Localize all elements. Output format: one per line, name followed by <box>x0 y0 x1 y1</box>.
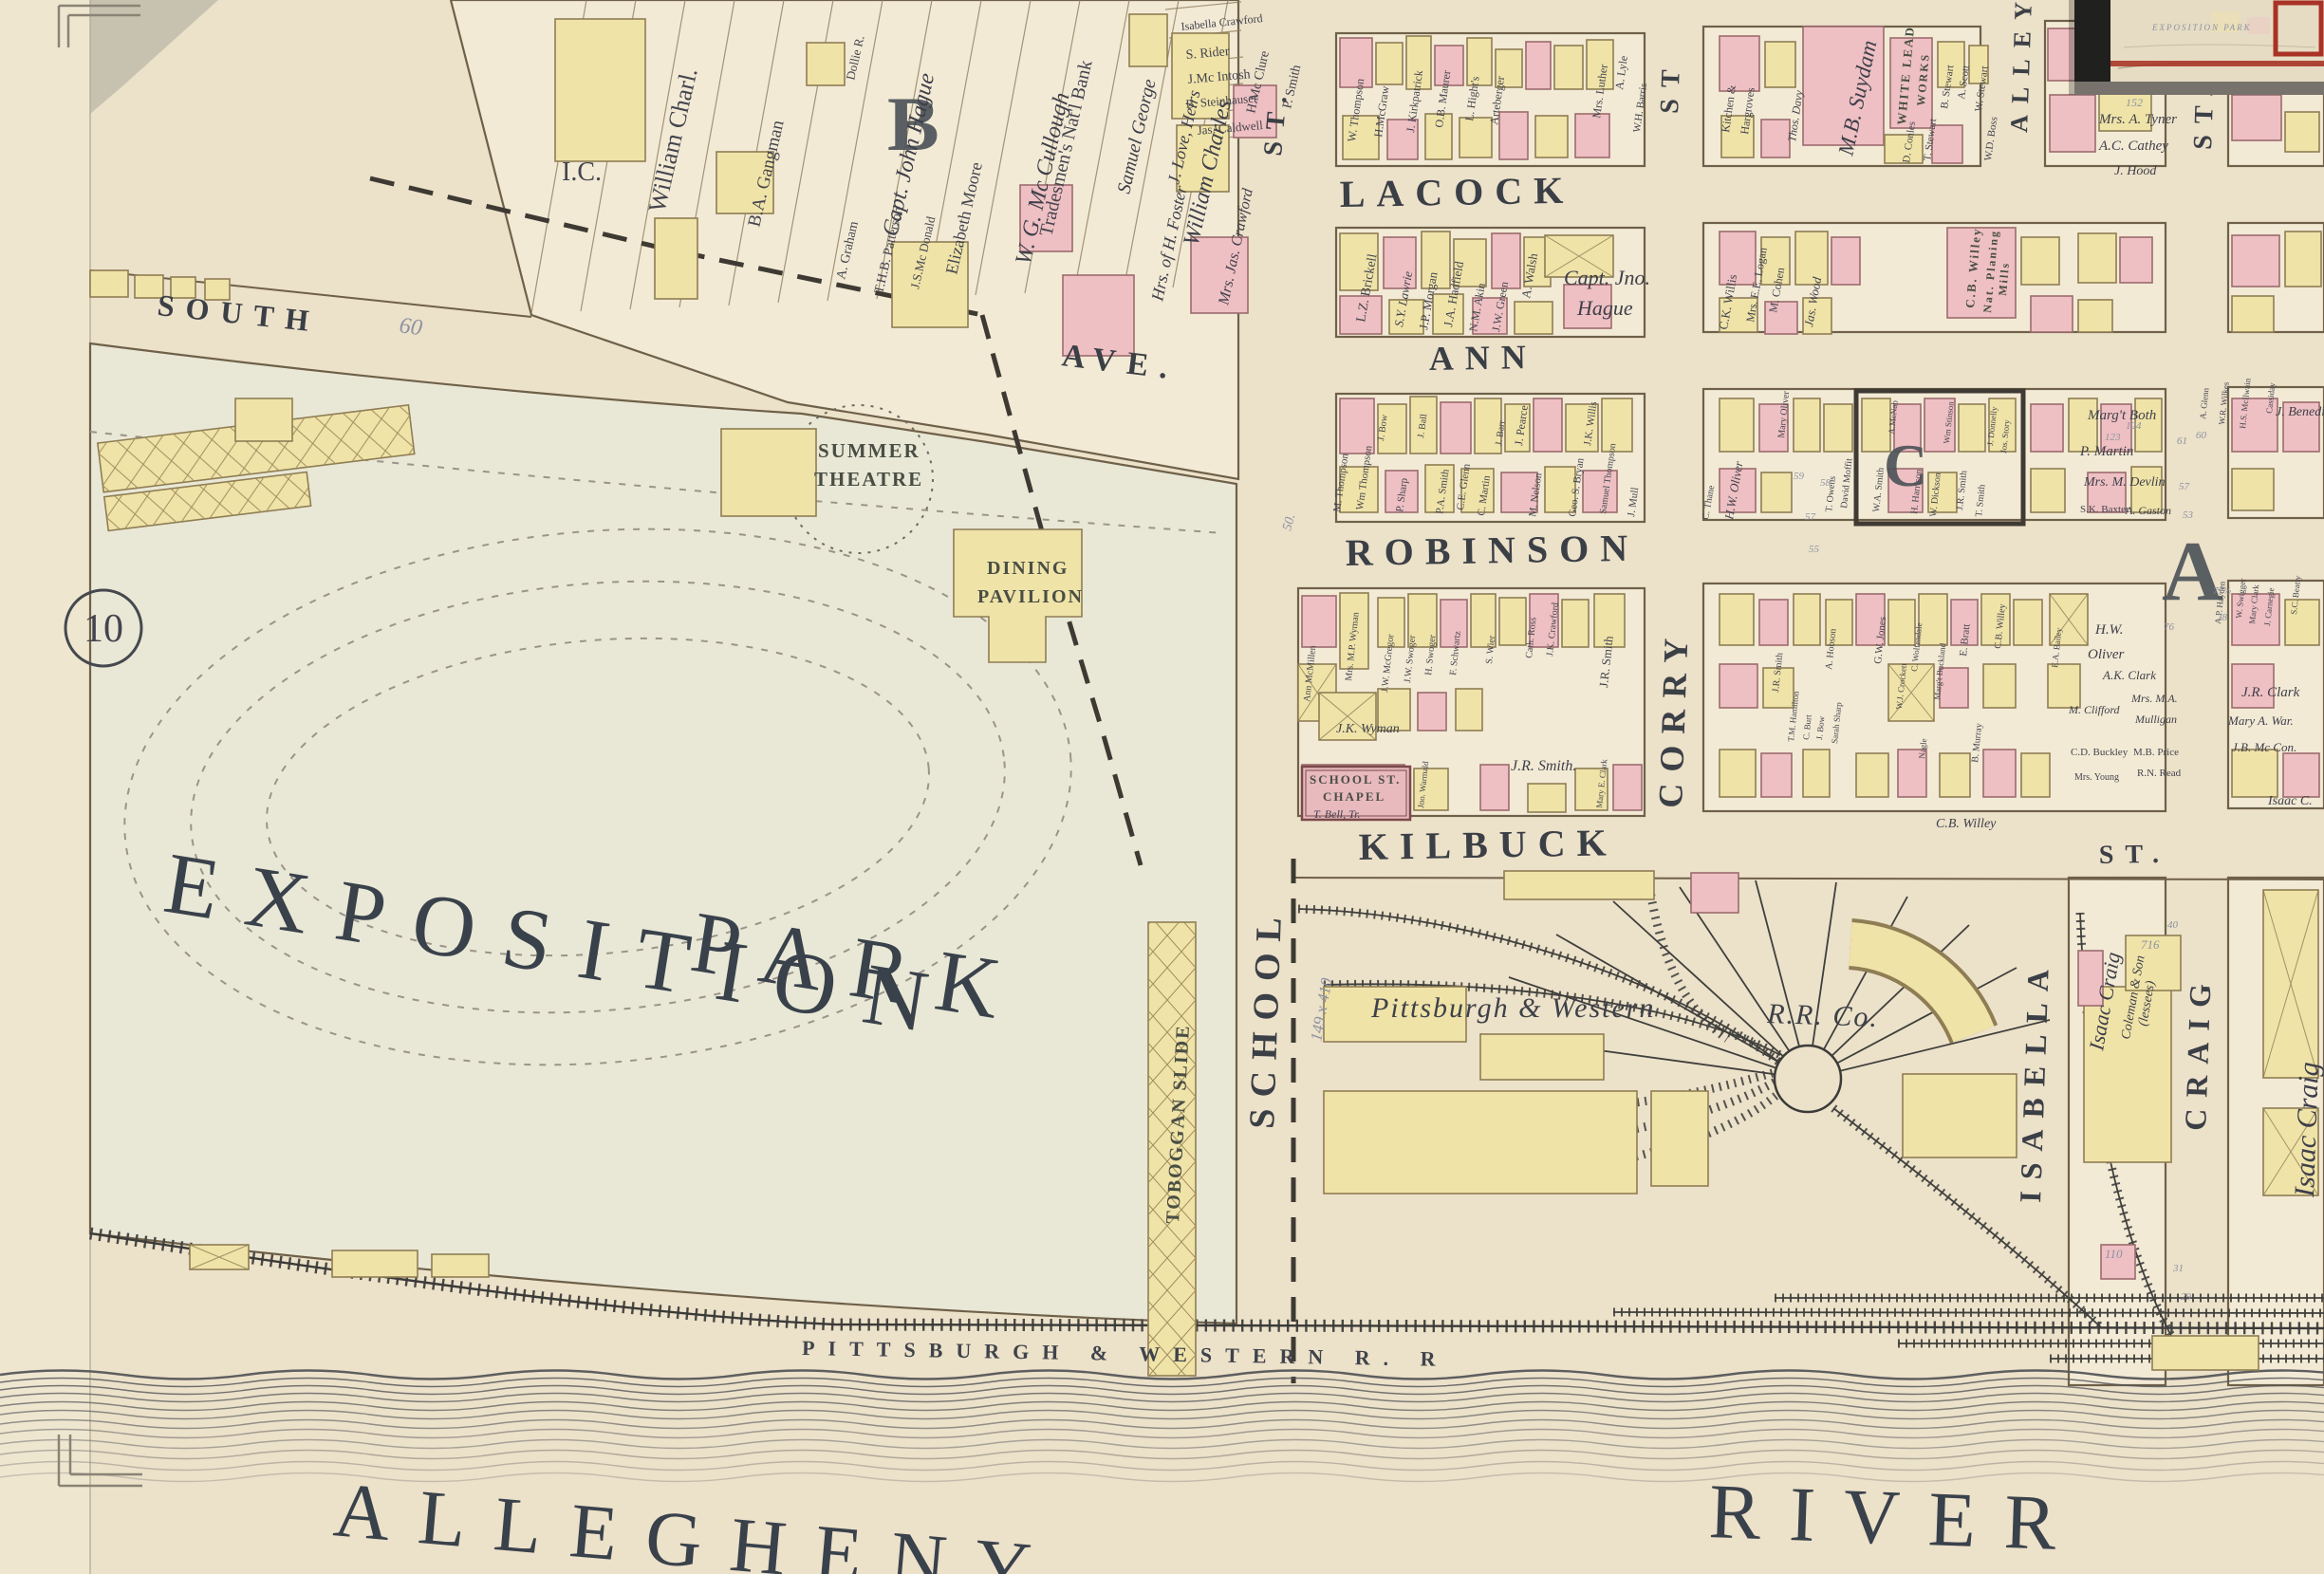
building <box>1761 472 1792 512</box>
map-label: CHAPEL <box>1323 789 1385 804</box>
building <box>1803 750 1830 797</box>
map-label: A.K. Clark <box>2102 668 2156 682</box>
lot-number: 60 <box>398 313 423 341</box>
building <box>1499 112 1528 159</box>
building <box>721 429 816 516</box>
lot-number: 55 <box>1809 544 1820 555</box>
map-label: PAVILION <box>977 586 1084 607</box>
building <box>807 43 845 85</box>
building <box>2078 300 2112 332</box>
lot-number: 123 <box>2105 432 2121 443</box>
atlas-map: EXPOSITION PARK ALLEGHENY RIVER 10 SOUTH… <box>0 0 2324 1574</box>
building <box>1759 600 1788 645</box>
lot-number: 29 <box>2181 1291 2192 1303</box>
building <box>1418 693 1446 731</box>
map-label: A.C. Cathey <box>2098 139 2168 154</box>
building <box>1903 1074 2017 1157</box>
map-label: A. Gaston <box>2125 504 2171 517</box>
map-label: J.R. Smith. <box>1511 758 1576 774</box>
street-label: LACOCK <box>1339 169 1574 215</box>
plate-number: 10 <box>84 607 123 651</box>
building <box>332 1250 418 1277</box>
building <box>2021 237 2059 285</box>
building <box>2283 753 2319 797</box>
building <box>655 218 697 299</box>
building <box>1720 594 1754 645</box>
lot-number: 61 <box>2177 435 2187 447</box>
building <box>1602 398 1632 452</box>
building <box>1720 750 1756 797</box>
lot-number: 152 <box>2126 96 2143 109</box>
map-label: DINING <box>987 558 1069 579</box>
building <box>1651 1091 1708 1186</box>
map-label: C.D. Buckley <box>2071 747 2129 758</box>
building <box>1480 765 1509 810</box>
building <box>1492 233 1520 288</box>
street-label: ROBINSON <box>1345 527 1639 574</box>
building <box>2050 95 2095 152</box>
building <box>1526 42 1551 89</box>
building <box>1983 664 2016 708</box>
map-label: I.C. <box>562 157 602 187</box>
building <box>1534 398 1562 452</box>
map-label: Mrs. M.A. <box>2130 692 2178 705</box>
lot-number: 59 <box>1794 471 1805 482</box>
building <box>1535 116 1568 157</box>
building <box>1129 14 1167 66</box>
map-viewer: EXPOSITION PARK ALLEGHENY RIVER 10 SOUTH… <box>0 0 2324 1574</box>
building <box>432 1254 489 1277</box>
map-label: Mrs. M. Devlin <box>2083 475 2166 490</box>
building <box>1562 600 1589 647</box>
building <box>1919 594 1947 645</box>
map-label: Hague <box>1576 296 1633 320</box>
street-label: CORRY <box>1651 626 1696 808</box>
building <box>1340 398 1374 454</box>
lot-number: 76 <box>2164 621 2175 633</box>
street-label: SCHOOL <box>1242 905 1290 1129</box>
lot-number: 53 <box>2183 509 2194 521</box>
building <box>1959 404 1985 452</box>
building <box>2263 890 2318 1078</box>
navigator-inset[interactable]: EXPOSITION PARK <box>2069 0 2324 95</box>
lot-number: 77½ <box>2213 585 2231 597</box>
building <box>2031 296 2073 332</box>
building <box>2285 231 2321 287</box>
sheet-margin <box>0 0 90 1574</box>
river-name-line2: RIVER <box>1707 1468 2086 1567</box>
building <box>2152 1336 2259 1370</box>
map-label: Mulligan <box>2134 713 2177 726</box>
building <box>1824 404 1852 452</box>
building <box>2232 750 2278 797</box>
turntable <box>1775 1046 1841 1112</box>
map-label: M.B. Price <box>2133 747 2179 758</box>
map-label: Oliver <box>2088 647 2124 662</box>
map-label: Capt. Jno. <box>1564 266 1650 289</box>
street-label: ST <box>1655 58 1686 114</box>
street-label: CRAIG <box>2178 972 2218 1131</box>
building <box>1456 689 1482 731</box>
map-label: SCHOOL ST. <box>1310 772 1401 787</box>
lot-number: 31 <box>2172 1263 2184 1274</box>
lot-number: 58 <box>1820 477 1831 489</box>
building <box>1940 753 1970 797</box>
map-label: H.W. <box>2094 622 2123 638</box>
map-label: Pittsburgh & Western <box>1370 992 1655 1024</box>
map-label: J.B. Mc Con. <box>2232 740 2296 754</box>
lot-number: 78 <box>2217 612 2228 623</box>
map-label: Marg't Both <box>2087 408 2156 423</box>
building <box>1324 1091 1637 1194</box>
building <box>2078 233 2116 283</box>
building <box>235 398 292 441</box>
building <box>2031 469 2065 512</box>
building <box>1575 114 1609 157</box>
street-label: ALLEY <box>2005 0 2037 133</box>
building <box>1983 750 2016 797</box>
building <box>2232 95 2281 140</box>
building <box>2048 664 2080 708</box>
building <box>2232 296 2274 332</box>
map-label: J. Benedict <box>2276 405 2324 419</box>
map-label: THEATRE <box>814 468 923 491</box>
map-label: T. Bell, Tr. <box>1313 807 1360 821</box>
building <box>1480 1034 1604 1080</box>
building <box>1515 302 1552 334</box>
building <box>1554 46 1583 89</box>
map-label: Isaac Craig <box>2289 1062 2324 1199</box>
map-label: Mary A. War. <box>2227 713 2294 728</box>
building <box>190 1245 249 1269</box>
map-label: Isaac C. <box>2267 794 2313 808</box>
building <box>1528 784 1566 812</box>
building <box>1720 36 1759 91</box>
map-label: C.B. Willey <box>1936 817 1997 831</box>
building <box>1794 398 1820 452</box>
building <box>1691 873 1738 913</box>
building <box>1888 600 1915 645</box>
lot-number: 110 <box>2105 1247 2123 1261</box>
building <box>1504 871 1654 899</box>
lot-number: 124 <box>2126 420 2142 432</box>
building <box>1613 765 1642 810</box>
street-label: ST. <box>2099 840 2171 870</box>
map-label: J.K. Wyman <box>1336 722 1400 736</box>
building <box>1441 402 1471 454</box>
map-label: S.K. Baxter <box>2080 504 2129 515</box>
building <box>1794 594 1820 645</box>
inset-bottom-band <box>2074 82 2324 95</box>
map-label: Mrs. Young <box>2074 772 2119 783</box>
building <box>2120 237 2152 283</box>
map-label: M. Clifford <box>2068 703 2121 716</box>
lot-number: 57 <box>2179 481 2190 492</box>
building <box>1376 43 1403 84</box>
building <box>2232 235 2279 287</box>
map-label: R.R. Co. <box>1766 998 1880 1033</box>
building <box>2021 753 2050 797</box>
lot-number: 716 <box>2141 937 2160 952</box>
street-label: ANN <box>1428 338 1537 378</box>
building <box>1856 753 1888 797</box>
building <box>1720 398 1754 452</box>
lot-number: 40 <box>2167 919 2179 931</box>
building <box>2232 469 2274 510</box>
map-label: Mrs. A. Tyner <box>2098 112 2177 127</box>
lot-number: 57 <box>1805 511 1816 523</box>
building <box>1499 598 1526 645</box>
building <box>2031 404 2063 452</box>
street-label: KILBUCK <box>1358 821 1618 868</box>
map-label: J.R. Clark <box>2241 685 2300 700</box>
building <box>90 270 128 297</box>
map-label: P. Martin <box>2079 444 2133 459</box>
building <box>2285 112 2319 152</box>
map-label: R.N. Read <box>2137 768 2182 779</box>
building <box>1761 753 1792 797</box>
building <box>555 19 645 161</box>
map-label: SUMMER <box>818 439 920 462</box>
lot-number: 60 <box>2196 430 2207 441</box>
building <box>1831 237 1860 285</box>
inset-minimap-label: EXPOSITION PARK <box>2151 23 2252 32</box>
map-label: J. Hood <box>2114 164 2157 178</box>
building <box>1765 42 1795 87</box>
building <box>2014 600 2042 645</box>
inset-viewport-line <box>2110 61 2324 66</box>
building <box>1720 664 1757 708</box>
building <box>1302 596 1336 647</box>
